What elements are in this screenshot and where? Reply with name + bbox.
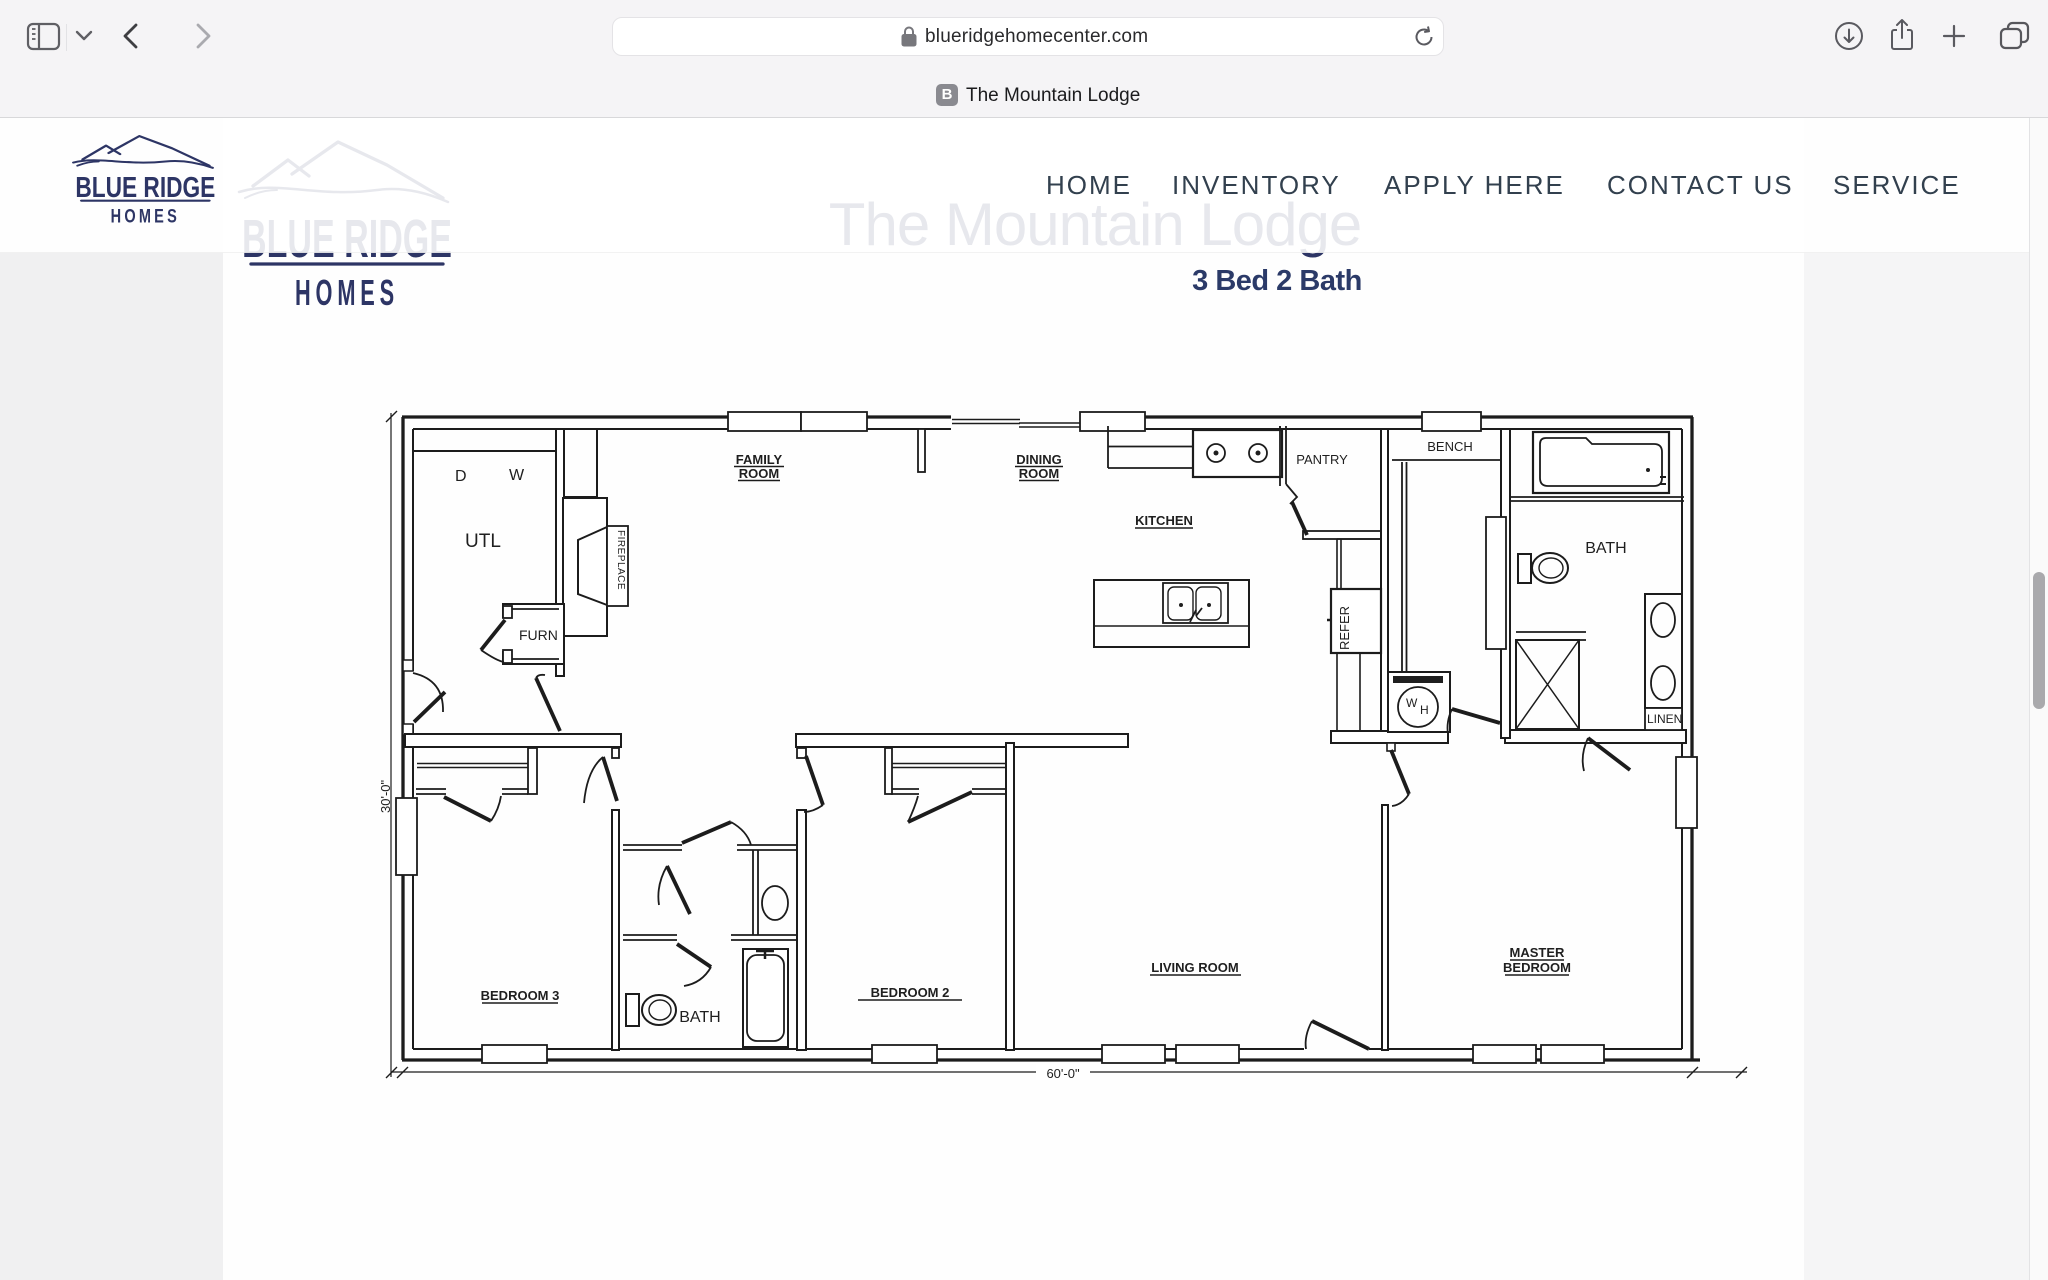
svg-text:LINEN: LINEN <box>1647 712 1682 726</box>
svg-text:BEDROOM 3: BEDROOM 3 <box>481 988 560 1003</box>
svg-text:D: D <box>455 468 467 485</box>
svg-text:ROOM: ROOM <box>739 466 779 481</box>
svg-text:PANTRY: PANTRY <box>1296 452 1348 467</box>
svg-text:REFER: REFER <box>1337 606 1352 650</box>
svg-text:MASTER: MASTER <box>1510 945 1566 960</box>
svg-text:W: W <box>509 467 525 484</box>
svg-text:ROOM: ROOM <box>1019 466 1059 481</box>
svg-text:BEDROOM: BEDROOM <box>1503 960 1571 975</box>
svg-text:30'-0": 30'-0" <box>378 779 393 813</box>
svg-text:LIVING ROOM: LIVING ROOM <box>1151 960 1238 975</box>
svg-text:KITCHEN: KITCHEN <box>1135 513 1193 528</box>
svg-text:BENCH: BENCH <box>1427 439 1473 454</box>
svg-text:DINING: DINING <box>1016 452 1062 467</box>
svg-text:FAMILY: FAMILY <box>736 452 783 467</box>
svg-text:W: W <box>1406 696 1418 710</box>
svg-text:FURN: FURN <box>519 627 558 643</box>
svg-text:60'-0": 60'-0" <box>1046 1066 1080 1081</box>
svg-text:FIREPLACE: FIREPLACE <box>615 530 626 590</box>
svg-text:BATH: BATH <box>679 1009 720 1026</box>
svg-text:HOMES: HOMES <box>111 205 180 225</box>
svg-text:UTL: UTL <box>465 531 501 552</box>
svg-text:H: H <box>1420 703 1429 717</box>
svg-text:BATH: BATH <box>1585 540 1626 557</box>
svg-text:BLUE RIDGE: BLUE RIDGE <box>75 171 215 203</box>
svg-text:BEDROOM 2: BEDROOM 2 <box>871 985 950 1000</box>
